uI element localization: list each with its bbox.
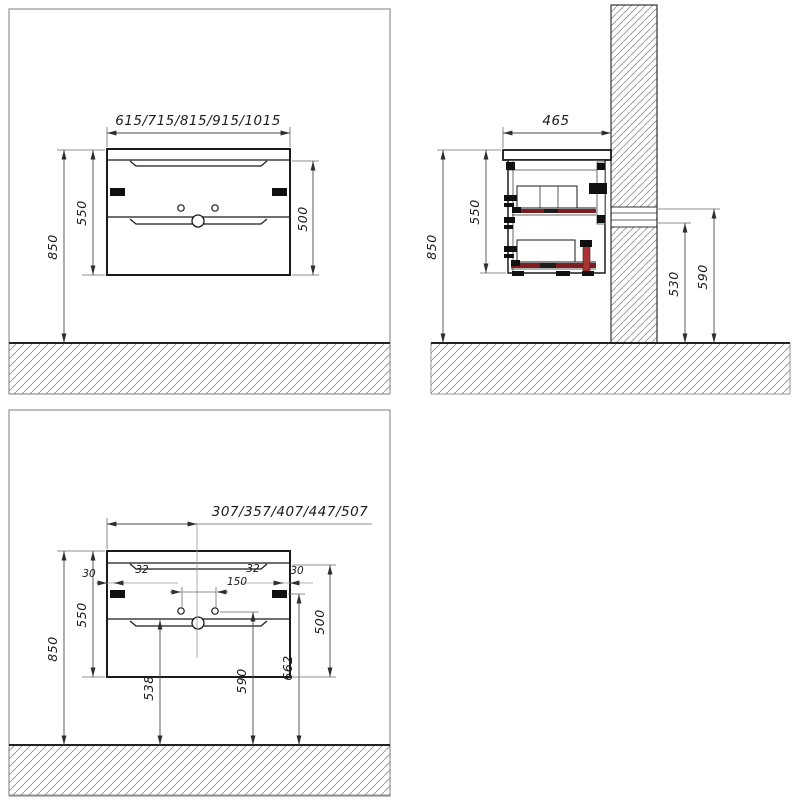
drawing-sheet: 615/715/815/915/1015 550 850 500 bbox=[0, 0, 800, 800]
cabinet-side-section bbox=[503, 150, 611, 276]
left-handle-detail bbox=[110, 590, 125, 598]
front-view: 615/715/815/915/1015 550 850 500 bbox=[9, 9, 390, 394]
drain-pipe bbox=[583, 246, 590, 271]
dim-handle-gap-right: 32 bbox=[246, 563, 260, 575]
side-view: 465 850 550 590 530 bbox=[424, 5, 790, 394]
faucet-hole-left-detail bbox=[178, 608, 184, 614]
right-handle bbox=[272, 188, 287, 196]
dim-connection-low: 530 bbox=[666, 271, 681, 296]
countertop-section bbox=[503, 150, 611, 160]
dim-faucet-holes-spacing: 150 bbox=[227, 576, 247, 588]
dim-siphon-height: 538 bbox=[141, 675, 156, 700]
faucet-hole-right bbox=[212, 205, 218, 211]
dim-mounting-height: 850 bbox=[45, 234, 60, 259]
dim-connection-high: 590 bbox=[695, 264, 710, 289]
left-handle bbox=[110, 188, 125, 196]
dim-width-variants: 615/715/815/915/1015 bbox=[115, 113, 281, 129]
dim-detail-body-height: 500 bbox=[312, 609, 327, 634]
floor-hatch-side bbox=[431, 343, 790, 394]
dim-detail-total-height: 550 bbox=[74, 602, 89, 627]
dim-faucet-holes-height: 590 bbox=[234, 668, 249, 693]
floor-hatch bbox=[9, 343, 390, 394]
dim-handle-gap-left: 32 bbox=[135, 564, 149, 576]
faucet-hole-right-detail bbox=[212, 608, 218, 614]
cabinet-front-detail bbox=[107, 524, 290, 677]
dim-depth: 465 bbox=[542, 113, 569, 129]
dim-side-mounting-height: 850 bbox=[424, 234, 439, 259]
vanity-dimension-drawing: 615/715/815/915/1015 550 850 500 bbox=[0, 0, 800, 800]
cabinet-front bbox=[107, 149, 290, 275]
cabinet-outline bbox=[107, 149, 290, 275]
dim-total-height: 550 bbox=[74, 200, 89, 225]
floor-hatch-detail bbox=[9, 745, 390, 795]
front-detail-view: 307/357/407/447/507 550 850 500 30 32 32… bbox=[9, 410, 390, 796]
faucet-hole-left bbox=[178, 205, 184, 211]
dim-edge-gap-left: 30 bbox=[82, 568, 96, 580]
dim-handles-height: 662 bbox=[280, 655, 295, 680]
drain-hole-detail bbox=[192, 617, 204, 629]
dim-side-total-height: 550 bbox=[467, 199, 482, 224]
wall-hatch bbox=[611, 5, 657, 343]
dim-edge-gap-right: 30 bbox=[290, 565, 304, 577]
dim-body-height: 500 bbox=[295, 206, 310, 231]
drain-hole bbox=[192, 215, 204, 227]
wall-bracket bbox=[589, 183, 607, 194]
dim-detail-mounting-height: 850 bbox=[45, 636, 60, 661]
dim-center-variants: 307/357/407/447/507 bbox=[212, 504, 369, 520]
right-handle-detail bbox=[272, 590, 287, 598]
